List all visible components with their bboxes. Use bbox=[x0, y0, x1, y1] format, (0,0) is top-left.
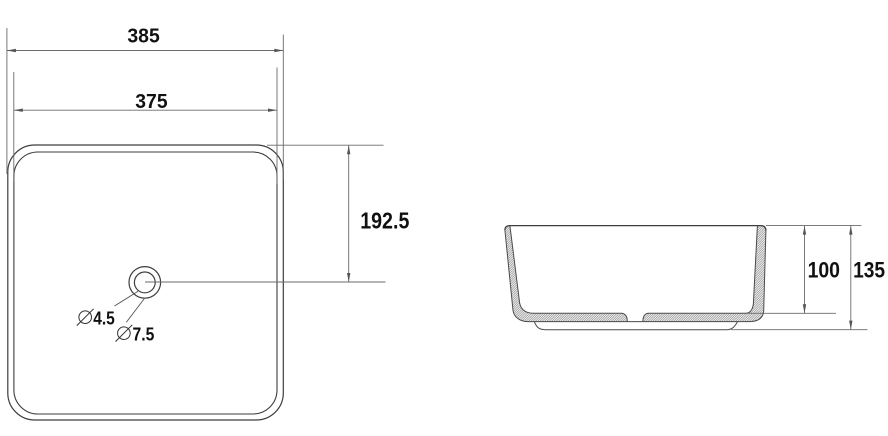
svg-text:192.5: 192.5 bbox=[360, 208, 409, 234]
svg-text:375: 375 bbox=[135, 91, 167, 113]
svg-text:385: 385 bbox=[127, 25, 159, 48]
svg-text:7.5: 7.5 bbox=[133, 324, 155, 345]
svg-text:100: 100 bbox=[808, 258, 840, 283]
svg-text:135: 135 bbox=[853, 258, 885, 283]
svg-text:4.5: 4.5 bbox=[93, 309, 115, 329]
